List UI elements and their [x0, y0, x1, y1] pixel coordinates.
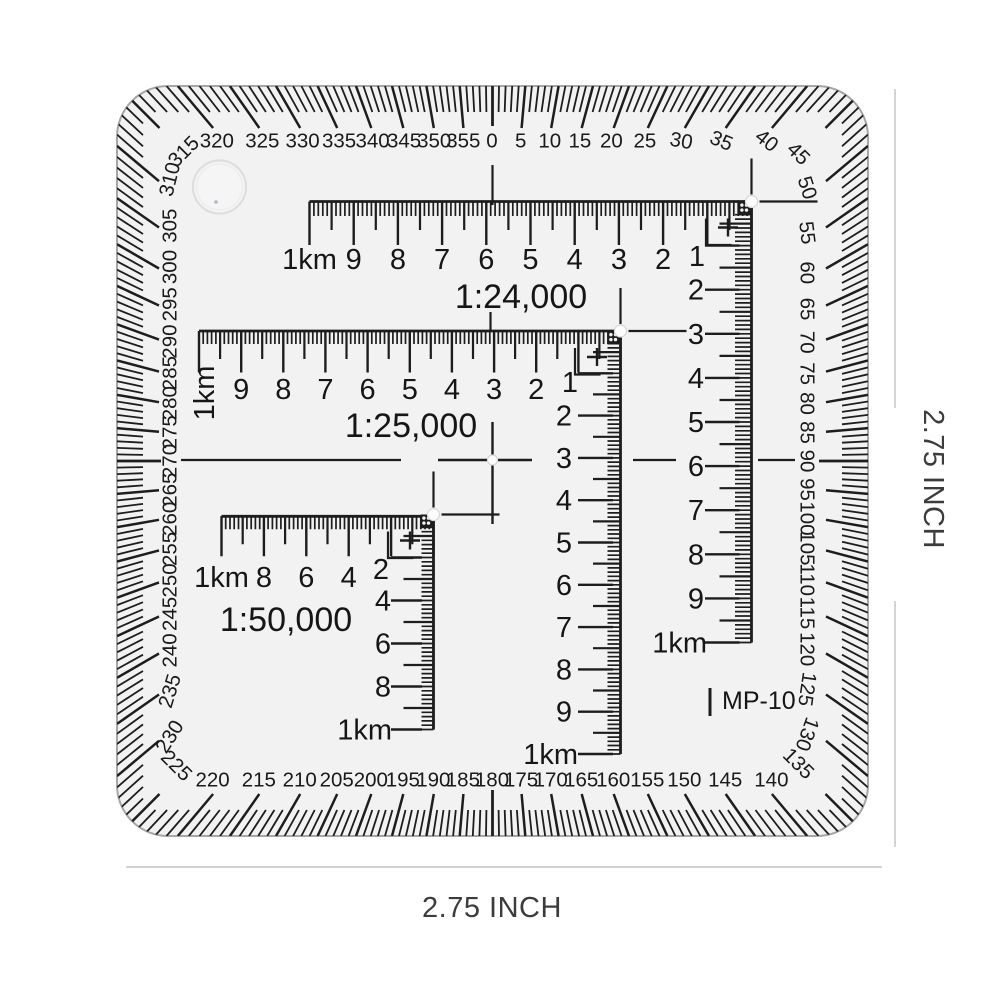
svg-text:4: 4	[341, 562, 357, 594]
svg-text:65: 65	[796, 298, 819, 321]
svg-text:6: 6	[375, 629, 391, 661]
svg-text:300: 300	[159, 250, 182, 284]
svg-text:1km: 1km	[337, 715, 392, 747]
svg-text:8: 8	[275, 374, 291, 406]
svg-text:335: 335	[322, 130, 356, 153]
svg-text:6: 6	[360, 374, 376, 406]
svg-text:305: 305	[159, 209, 182, 243]
svg-text:25: 25	[633, 130, 656, 153]
svg-text:105: 105	[796, 531, 819, 565]
svg-text:70: 70	[796, 331, 819, 354]
svg-text:215: 215	[242, 769, 276, 792]
svg-text:355: 355	[446, 130, 480, 153]
svg-text:1:24,000: 1:24,000	[455, 278, 587, 316]
svg-text:20: 20	[600, 130, 623, 153]
svg-text:205: 205	[320, 769, 354, 792]
svg-text:2: 2	[688, 275, 704, 307]
svg-text:115: 115	[796, 597, 819, 630]
svg-text:145: 145	[708, 769, 742, 792]
svg-text:7: 7	[317, 374, 333, 406]
svg-text:4: 4	[567, 244, 583, 276]
svg-text:320: 320	[200, 130, 234, 153]
svg-text:2: 2	[528, 374, 544, 406]
svg-text:8: 8	[375, 672, 391, 704]
svg-text:3: 3	[611, 244, 627, 276]
svg-text:85: 85	[796, 421, 819, 444]
svg-text:165: 165	[564, 769, 598, 792]
svg-text:7: 7	[688, 495, 704, 527]
svg-text:155: 155	[630, 769, 664, 792]
svg-text:5: 5	[556, 528, 572, 560]
svg-text:120: 120	[796, 632, 819, 666]
svg-text:30: 30	[668, 128, 694, 155]
svg-text:255: 255	[159, 532, 182, 566]
svg-text:1km: 1km	[282, 244, 337, 276]
svg-text:6: 6	[556, 570, 572, 602]
svg-text:95: 95	[796, 478, 819, 501]
svg-text:15: 15	[568, 130, 591, 153]
svg-text:6: 6	[298, 562, 314, 594]
svg-text:195: 195	[386, 769, 420, 792]
svg-text:3: 3	[486, 374, 502, 406]
svg-text:1: 1	[689, 241, 705, 273]
svg-text:0: 0	[486, 130, 497, 153]
svg-text:1km: 1km	[652, 628, 707, 660]
svg-text:240: 240	[159, 633, 182, 667]
svg-text:60: 60	[796, 261, 819, 284]
svg-text:170: 170	[534, 769, 568, 792]
svg-text:2: 2	[556, 401, 572, 433]
svg-text:280: 280	[159, 386, 182, 420]
svg-text:250: 250	[159, 563, 182, 597]
svg-text:1km: 1km	[194, 562, 249, 594]
svg-text:345: 345	[387, 130, 421, 153]
svg-text:7: 7	[434, 244, 450, 276]
svg-text:200: 200	[354, 769, 388, 792]
svg-text:5: 5	[515, 130, 526, 153]
svg-text:325: 325	[245, 130, 279, 153]
svg-text:3: 3	[688, 319, 704, 351]
svg-text:90: 90	[796, 450, 819, 473]
svg-text:330: 330	[285, 130, 319, 153]
svg-text:190: 190	[416, 769, 450, 792]
svg-text:210: 210	[283, 769, 317, 792]
svg-text:3: 3	[556, 443, 572, 475]
svg-text:5: 5	[402, 374, 418, 406]
svg-text:150: 150	[667, 769, 701, 792]
svg-text:185: 185	[446, 769, 480, 792]
svg-text:245: 245	[159, 597, 182, 631]
svg-text:55: 55	[794, 220, 820, 245]
svg-text:4: 4	[688, 363, 704, 395]
svg-text:9: 9	[688, 583, 704, 615]
svg-text:2.75 INCH: 2.75 INCH	[422, 892, 562, 924]
svg-text:2.75 INCH: 2.75 INCH	[917, 409, 949, 549]
svg-text:10: 10	[538, 130, 561, 153]
svg-text:8: 8	[688, 539, 704, 571]
svg-text:2: 2	[655, 244, 671, 276]
svg-text:8: 8	[390, 244, 406, 276]
svg-text:5: 5	[688, 407, 704, 439]
svg-text:160: 160	[596, 769, 630, 792]
svg-text:1:25,000: 1:25,000	[345, 407, 477, 445]
svg-text:110: 110	[796, 563, 819, 596]
svg-text:220: 220	[195, 769, 229, 792]
svg-text:80: 80	[796, 392, 819, 415]
svg-text:7: 7	[556, 612, 572, 644]
svg-text:4: 4	[375, 586, 391, 618]
svg-text:1:50,000: 1:50,000	[220, 601, 352, 639]
svg-text:9: 9	[233, 374, 249, 406]
svg-text:MP-10: MP-10	[722, 687, 796, 715]
svg-text:4: 4	[444, 374, 460, 406]
svg-text:2: 2	[373, 554, 389, 586]
svg-text:1km: 1km	[189, 366, 221, 421]
svg-text:8: 8	[556, 654, 572, 686]
svg-text:4: 4	[556, 485, 572, 517]
svg-text:285: 285	[159, 356, 182, 390]
svg-text:140: 140	[754, 769, 788, 792]
svg-text:75: 75	[796, 362, 819, 385]
svg-text:125: 125	[793, 671, 821, 708]
svg-text:1km: 1km	[523, 739, 578, 771]
svg-text:8: 8	[256, 562, 272, 594]
svg-text:180: 180	[475, 769, 509, 792]
svg-text:175: 175	[504, 769, 538, 792]
svg-text:340: 340	[355, 130, 389, 153]
svg-text:9: 9	[346, 244, 362, 276]
svg-text:6: 6	[688, 451, 704, 483]
svg-text:6: 6	[478, 244, 494, 276]
svg-text:5: 5	[522, 244, 538, 276]
svg-text:295: 295	[159, 287, 182, 321]
svg-text:290: 290	[159, 324, 182, 358]
svg-text:9: 9	[556, 697, 572, 729]
